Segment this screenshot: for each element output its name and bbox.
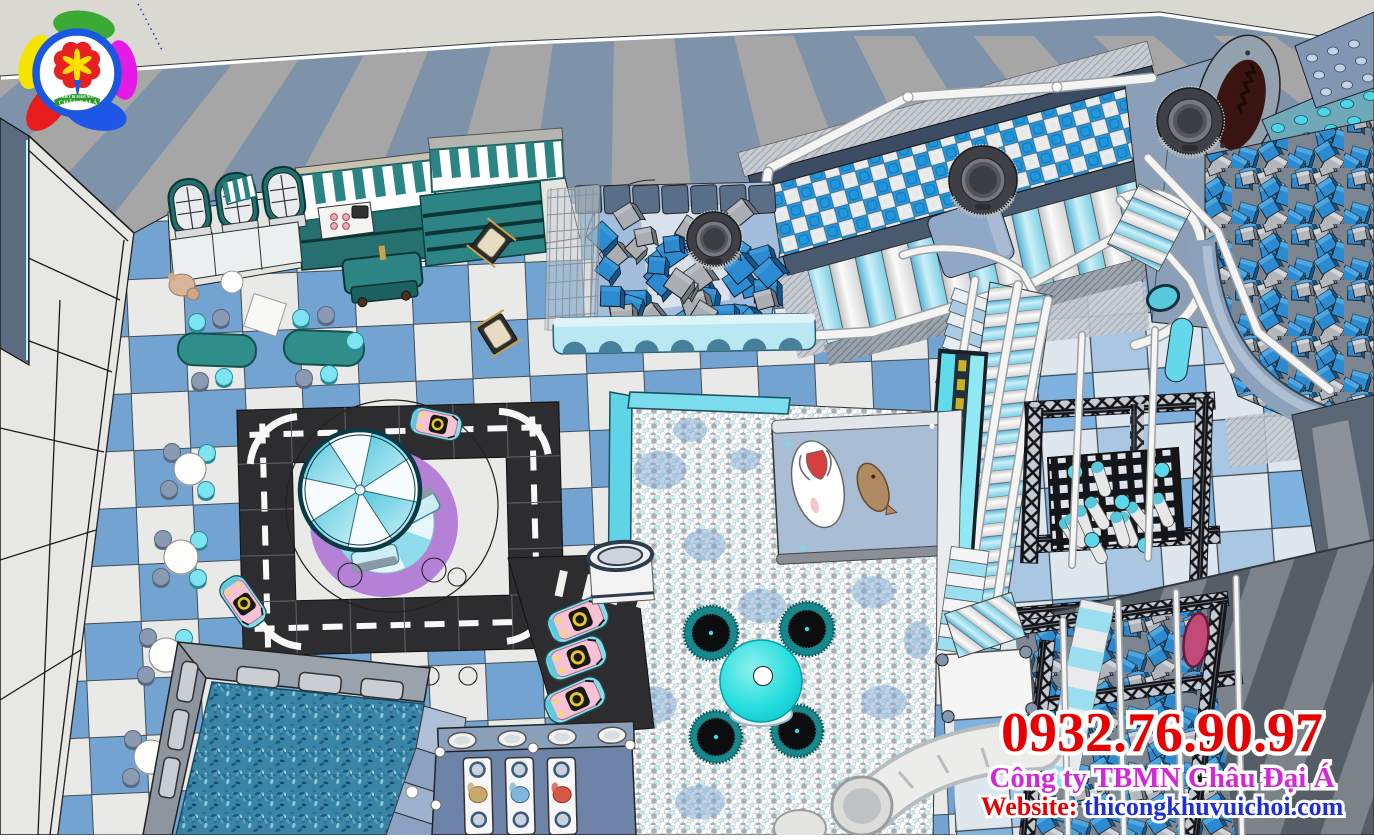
svg-text:THIẾT BỊ MẦM NON: THIẾT BỊ MẦM NON: [59, 94, 95, 99]
svg-text:Công ty TBMN Châu Đại Á: Công ty TBMN Châu Đại Á: [989, 761, 1334, 794]
svg-text:0932.76.90.97: 0932.76.90.97: [1001, 702, 1323, 764]
svg-text:CHÂU ĐẠI Á: CHÂU ĐẠI Á: [59, 99, 98, 107]
svg-text:Website: thicongkhuvuichoi.com: Website: thicongkhuvuichoi.com: [981, 792, 1344, 821]
